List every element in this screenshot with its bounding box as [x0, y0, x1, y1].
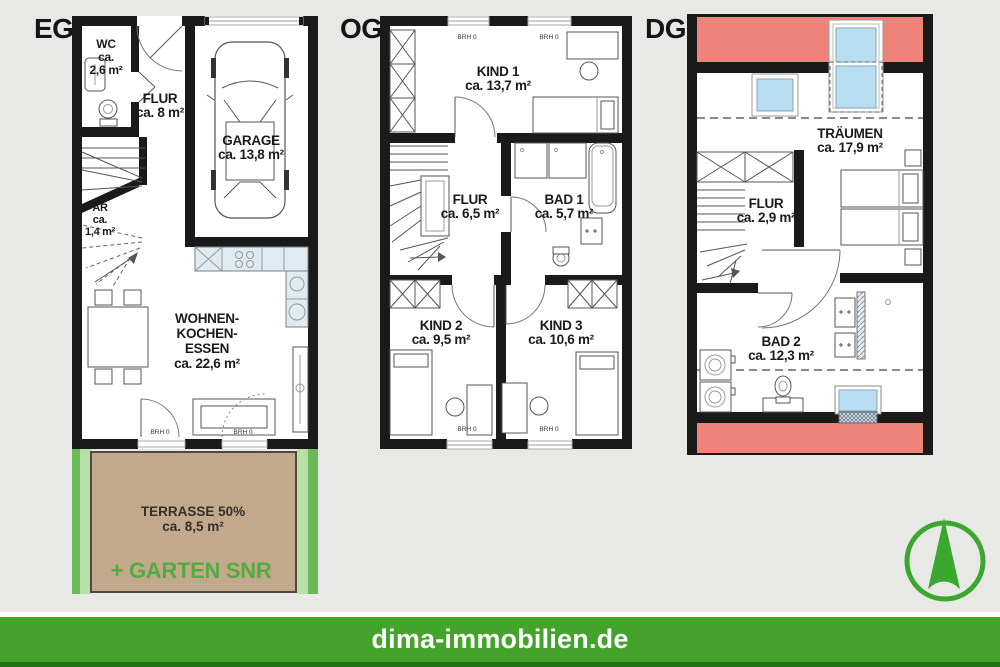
eg-plan: EG [34, 13, 318, 594]
cabinet-icon [581, 218, 602, 244]
room-area-ar-2: 1,4 m² [85, 226, 116, 238]
room-area-kind2: ca. 9,5 m² [412, 332, 471, 347]
wardrobe-icon [697, 152, 793, 182]
skylight-large [829, 20, 883, 112]
skylight-small [752, 74, 798, 116]
window-sill-label: BRH 0 [539, 34, 559, 41]
roof-area-bottom [697, 423, 923, 453]
room-area-wohnen: ca. 22,6 m² [174, 356, 241, 371]
window-sill-label: BRH 0 [539, 426, 559, 433]
room-label-flur-dg: FLUR [749, 196, 784, 211]
room-area-terrasse: ca. 8,5 m² [162, 519, 224, 534]
window-sill-label: BRH 0 [457, 426, 477, 433]
room-label-kind2: KIND 2 [420, 318, 462, 333]
nightstand-icon [905, 150, 921, 166]
room-label-wohnen-2: KOCHEN- [177, 326, 238, 341]
chair-icon [446, 398, 464, 416]
og-plan: OG [340, 13, 632, 449]
floor-label-og: OG [340, 13, 383, 44]
room-label-bad1: BAD 1 [544, 192, 584, 207]
bed-icon [841, 209, 923, 245]
nightstand-icon [905, 249, 921, 265]
room-area-garage: ca. 13,8 m² [218, 147, 285, 162]
room-area-wc-1: ca. [98, 50, 114, 64]
window-sill-label: BRH 0 [457, 34, 477, 41]
bed-icon [841, 170, 923, 207]
shower-icon [515, 143, 547, 178]
room-area-wc-2: 2,6 m² [90, 63, 123, 77]
room-area-ar-1: ca. [93, 214, 108, 226]
room-label-wohnen-1: WOHNEN- [175, 311, 239, 326]
garden-strip-left-outer [72, 449, 80, 594]
room-area-flur-eg: ca. 8 m² [136, 105, 185, 120]
roof-area-top [697, 17, 923, 62]
dryer-icon [700, 382, 735, 412]
window-sill-label: BRH 0 [233, 429, 253, 436]
bed-icon [390, 350, 432, 435]
garden-strip-right-outer [308, 449, 318, 594]
room-area-bad2: ca. 12,3 m² [748, 348, 815, 363]
wardrobe-icon [568, 280, 617, 308]
vanity-icon [549, 143, 586, 178]
room-label-wohnen-3: ESSEN [185, 341, 229, 356]
north-compass-icon [907, 518, 983, 599]
garten-label: + GARTEN SNR [111, 558, 272, 583]
dg-plan: DG [645, 13, 933, 455]
room-label-ar: AR [92, 202, 108, 214]
room-label-garage: GARAGE [222, 133, 280, 148]
desk-icon [502, 383, 527, 433]
wardrobe-icon [390, 30, 415, 132]
room-label-flur-og: FLUR [453, 192, 488, 207]
garden-strip-right-inner [297, 449, 308, 594]
floor-label-dg: DG [645, 13, 686, 44]
wc-toilet-icon [99, 100, 117, 126]
floor-label-eg: EG [34, 13, 73, 44]
sideboard-icon [293, 347, 308, 432]
floorplan-drawing: EG [0, 0, 1000, 612]
room-label-terrasse: TERRASSE 50% [141, 504, 245, 519]
room-label-flur-eg: FLUR [143, 91, 178, 106]
bed-icon [533, 97, 618, 133]
chair-icon [530, 397, 548, 415]
room-label-kind3: KIND 3 [540, 318, 583, 333]
footer-bar: dima-immobilien.de [0, 617, 1000, 667]
cabinet-icon [835, 333, 855, 357]
garage-door [205, 17, 303, 25]
room-label-kind1: KIND 1 [477, 64, 520, 79]
room-area-flur-dg: ca. 2,9 m² [737, 210, 796, 225]
wardrobe-icon [390, 280, 440, 308]
room-label-wc: WC [96, 37, 116, 51]
room-area-flur-og: ca. 6,5 m² [441, 206, 500, 221]
room-area-kind3: ca. 10,6 m² [528, 332, 595, 347]
room-label-traeumen: TRÄUMEN [817, 126, 882, 141]
toilet-icon [553, 247, 569, 266]
washer-icon [700, 350, 735, 380]
desk-icon [567, 32, 618, 59]
skylight-bottom [835, 386, 881, 423]
room-label-bad2: BAD 2 [761, 334, 800, 349]
toilet-icon [775, 376, 791, 403]
bed-icon [576, 352, 618, 435]
chair-icon [580, 62, 598, 80]
terrace-garden: TERRASSE 50% ca. 8,5 m² + GARTEN SNR [72, 449, 318, 594]
cabinet-icon [835, 298, 855, 327]
room-area-bad1: ca. 5,7 m² [535, 206, 594, 221]
footer-website: dima-immobilien.de [371, 624, 628, 655]
room-area-traeumen: ca. 17,9 m² [817, 140, 884, 155]
shower-glass-icon [857, 292, 865, 359]
floorplan-page: EG [0, 0, 1000, 667]
window-sill-label: BRH 0 [150, 429, 170, 436]
garden-strip-left-inner [80, 449, 91, 594]
room-area-kind1: ca. 13,7 m² [465, 78, 532, 93]
